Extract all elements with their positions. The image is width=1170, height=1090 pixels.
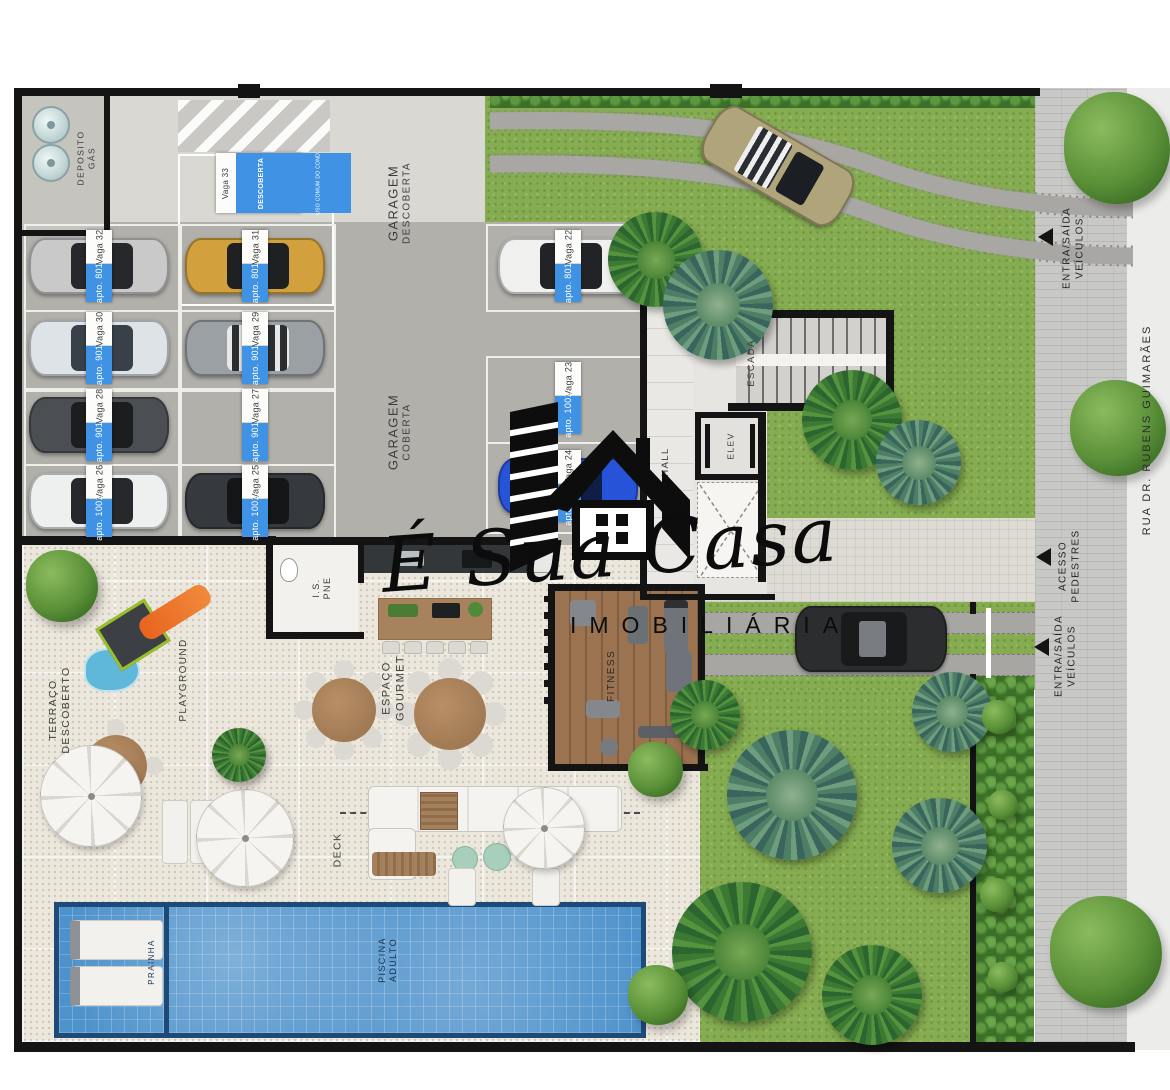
label-line: GARAGEM xyxy=(386,165,402,241)
gym-station xyxy=(570,600,596,626)
deck-wood-lounger xyxy=(372,852,436,876)
garden-palm xyxy=(892,798,987,893)
kitchen-fridge xyxy=(528,547,554,573)
elevator-label: ELEV xyxy=(726,432,737,459)
planting-bush xyxy=(988,790,1018,820)
street-tree xyxy=(1050,896,1162,1008)
apto-number: apto. 1001 xyxy=(555,396,581,434)
playground-label: PLAYGROUND xyxy=(178,638,191,721)
vaga-number: Vaga 33 xyxy=(216,153,236,213)
void-x-marks xyxy=(698,483,764,579)
gas-cylinder xyxy=(32,106,70,144)
dining-chair xyxy=(404,641,422,654)
label-line: PNE xyxy=(322,577,333,600)
label-line: COBERTA xyxy=(402,403,415,460)
vaga-text: Vaga 29 xyxy=(250,311,260,346)
vaga-text: Vaga 23 xyxy=(563,361,573,396)
dining-chair xyxy=(470,641,488,654)
vaga-number: Vaga 26 xyxy=(86,465,112,499)
gas-room-label: DEPOSITO GÁS xyxy=(75,131,96,186)
wall-left xyxy=(14,88,22,1052)
terrace-tree xyxy=(26,550,98,622)
gourmet-round-table xyxy=(414,678,486,750)
apto-number: apto. 901 xyxy=(86,423,112,461)
apto-number: apto. 801 xyxy=(555,264,581,302)
parking-tag-vaga-23: Vaga 23apto. 1001 xyxy=(555,362,581,434)
table-greens xyxy=(388,604,418,617)
apto-text: apto. 1001 xyxy=(250,495,260,541)
kitchen-counter xyxy=(362,545,554,573)
apto-number: apto. 801 xyxy=(86,264,112,302)
parking-tag-vaga-22: Vaga 22apto. 801 xyxy=(555,230,581,302)
apto-number: apto. 901 xyxy=(242,423,268,461)
terrace-palm xyxy=(212,728,266,782)
label-line: PEDESTRES xyxy=(1070,529,1083,602)
label-line: ADULTO xyxy=(388,938,399,982)
label-line: PISCINA xyxy=(377,937,388,983)
palm-tree xyxy=(876,420,961,505)
terrace-label: TERRAÇO DESCOBERTO xyxy=(47,666,73,753)
parking-tag-vaga-25: Vaga 25apto. 1001 xyxy=(242,465,268,537)
parking-tag-vaga-33: Vaga 33 DESCOBERTA USO COMUM DO COND. xyxy=(216,153,302,213)
wall-top xyxy=(14,88,1040,96)
parking-tag-vaga-30: Vaga 30apto. 901 xyxy=(86,312,112,384)
label-line: ESPAÇO xyxy=(380,661,394,714)
elevator-rail xyxy=(750,424,755,468)
label-line: ELEV xyxy=(726,432,737,459)
wc-wall-top xyxy=(266,537,366,545)
pedestrian-access-label: ACESSO PEDESTRES xyxy=(1058,529,1083,602)
vaga-number: Vaga 23 xyxy=(555,362,581,396)
terrace-umbrella xyxy=(40,745,142,847)
apto-text: apto. 1001 xyxy=(94,495,104,541)
pool-chair xyxy=(532,868,560,906)
deck-label: DECK xyxy=(331,833,344,868)
pool-adult-label: PISCINA ADULTO xyxy=(377,937,400,983)
gas-room-wall-right xyxy=(104,96,110,236)
garden-palm xyxy=(670,680,740,750)
wall-garage-leisure xyxy=(14,536,276,545)
spot-33-note: DESCOBERTA USO COMUM DO COND. xyxy=(236,153,351,213)
garden-palm xyxy=(822,945,922,1045)
pool-kids-label: PRAINHA xyxy=(147,939,157,984)
table-plant xyxy=(468,602,483,617)
label-line: I.S. xyxy=(311,578,322,597)
label-line: ESCADA xyxy=(746,339,758,386)
garage-covered-label: GARAGEM COBERTA xyxy=(386,394,415,470)
vehicle-entrance-top-label: ENTRA/SAÍDA VEÍCULOS xyxy=(1062,207,1087,289)
dining-chair xyxy=(448,641,466,654)
garden-palm xyxy=(672,882,812,1022)
core-wall-right xyxy=(758,412,766,582)
vaga-text: Vaga 33 xyxy=(222,167,231,198)
parking-tag-vaga-28: Vaga 28apto. 901 xyxy=(86,389,112,461)
sun-lounger xyxy=(162,800,188,864)
apto-text: apto. 801 xyxy=(94,263,104,303)
label-line: GÁS xyxy=(86,147,97,169)
hatched-area xyxy=(178,100,330,152)
parking-tag-vaga-27: Vaga 27apto. 901 xyxy=(242,389,268,461)
apto-number: apto. 901 xyxy=(86,346,112,384)
vaga-number: Vaga 30 xyxy=(86,312,112,346)
pool-chair xyxy=(448,868,476,906)
label-line: VEÍCULOS xyxy=(1066,625,1079,687)
vaga-number: Vaga 31 xyxy=(242,230,268,264)
garden-bush xyxy=(628,742,683,797)
core-wall-bottom xyxy=(640,594,775,600)
label-line: DESCOBERTO xyxy=(60,666,73,753)
hall-wall-left xyxy=(640,298,647,600)
label-line: TERRAÇO xyxy=(47,679,60,740)
apto-text: apto. 901 xyxy=(250,345,260,385)
label-line: FITNESS xyxy=(606,650,619,702)
label-line: GOURMET xyxy=(394,655,408,721)
parking-tag-vaga-31: Vaga 31apto. 801 xyxy=(242,230,268,302)
apto-number: apto. 1001 xyxy=(242,499,268,537)
apto-text: apto. 1001 xyxy=(563,480,573,526)
label-line: VEÍCULOS xyxy=(1074,217,1087,279)
vaga-text: Vaga 22 xyxy=(563,229,573,264)
toilet xyxy=(280,558,298,582)
label-line: ENTRA/SAÍDA xyxy=(1054,615,1067,697)
apto-text: apto. 901 xyxy=(250,422,260,462)
wall-door-marker-1 xyxy=(238,84,260,98)
stairs-label: ESCADA xyxy=(746,339,758,386)
fitness-wall-top xyxy=(548,584,704,591)
deck-umbrella xyxy=(503,787,585,869)
label-line: DESCOBERTA xyxy=(402,162,415,244)
shaft-void xyxy=(697,482,763,578)
label-line: ENTRA/SAÍDA xyxy=(1062,207,1075,289)
label-line: RUA DR. RUBENS GUIMARÃES xyxy=(1141,325,1155,536)
vehicle-entrance-top-arrow xyxy=(1038,228,1053,246)
hall-label: HALL xyxy=(660,447,672,476)
apto-text: apto. 901 xyxy=(94,345,104,385)
planting-bush xyxy=(988,962,1018,992)
apto-text: apto. 1001 xyxy=(563,392,573,438)
label-line: PLAYGROUND xyxy=(178,638,191,721)
car-black-driving xyxy=(795,606,947,672)
wall-door-marker-2 xyxy=(710,84,742,98)
garden-palm xyxy=(727,730,857,860)
gas-cylinder xyxy=(32,144,70,182)
vaga-text: Vaga 32 xyxy=(94,229,104,264)
vaga-number: Vaga 28 xyxy=(86,389,112,423)
vehicle-entrance-bottom-label: ENTRA/SAÍDA VEÍCULOS xyxy=(1054,615,1079,697)
apto-number: apto. 801 xyxy=(242,264,268,302)
vaga-number: Vaga 29 xyxy=(242,312,268,346)
wall-property-right-upper xyxy=(970,602,976,614)
kitchen-wall-top xyxy=(358,537,556,545)
gym-bike xyxy=(628,606,648,644)
dining-chair xyxy=(426,641,444,654)
pergola-dotted-line xyxy=(544,596,551,704)
vaga-text: Vaga 25 xyxy=(250,464,260,499)
street-tree xyxy=(1064,92,1170,204)
vaga-text: Vaga 30 xyxy=(94,311,104,346)
table-grill xyxy=(432,603,460,618)
car-sunroof xyxy=(859,621,886,658)
vaga-number: Vaga 22 xyxy=(555,230,581,264)
vaga-number: Vaga 32 xyxy=(86,230,112,264)
apto-text: apto. 801 xyxy=(563,263,573,303)
dining-chair xyxy=(382,641,400,654)
gym-bench xyxy=(586,700,620,718)
apto-number: apto. 901 xyxy=(242,346,268,384)
pool-divider xyxy=(164,904,169,1036)
garage-uncovered-label: GARAGEM DESCOBERTA xyxy=(386,162,415,244)
wall-bottom xyxy=(14,1042,1135,1052)
vaga-number: Vaga 27 xyxy=(242,389,268,423)
wc-label: I.S. PNE xyxy=(311,577,334,600)
label-line: ACESSO xyxy=(1058,541,1071,591)
vaga-text: Vaga 27 xyxy=(250,388,260,423)
kitchen-cooktop xyxy=(462,550,492,568)
gym-treadmill xyxy=(664,600,688,654)
vaga-number: Vaga 25 xyxy=(242,465,268,499)
note-small: USO COMUM DO COND. xyxy=(316,151,322,214)
terrace-umbrella-2 xyxy=(196,789,294,887)
apto-number: apto. 1001 xyxy=(86,499,112,537)
vaga-text: Vaga 24 xyxy=(563,449,573,484)
apto-text: apto. 901 xyxy=(94,422,104,462)
wc-wall-bottom xyxy=(266,632,364,639)
parking-tag-vaga-24: Vaga 24apto. 1001 xyxy=(555,450,581,522)
planting-bush xyxy=(980,878,1014,912)
vaga-text: Vaga 26 xyxy=(94,464,104,499)
deck-slat-table xyxy=(420,792,458,830)
planting-bush xyxy=(982,700,1016,734)
label-line: DECK xyxy=(331,833,344,868)
street-name-label: RUA DR. RUBENS GUIMARÃES xyxy=(1141,325,1155,536)
label-line: DEPOSITO xyxy=(75,131,86,186)
stairs-landing xyxy=(736,354,886,366)
wc-wall-left xyxy=(266,537,273,639)
label-line: HALL xyxy=(660,447,672,476)
garden-palm xyxy=(912,672,992,752)
vaga-text: Vaga 28 xyxy=(94,388,104,423)
gym-ball xyxy=(600,738,618,756)
vaga-text: Vaga 31 xyxy=(250,229,260,264)
vehicle-entrance-bottom-arrow xyxy=(1034,638,1049,656)
note-big: DESCOBERTA xyxy=(258,157,265,208)
fitness-label: FITNESS xyxy=(606,650,619,702)
label-line: GARAGEM xyxy=(386,394,402,470)
parking-tag-vaga-32: Vaga 32apto. 801 xyxy=(86,230,112,302)
parking-tag-vaga-29: Vaga 29apto. 901 xyxy=(242,312,268,384)
site-plan: DEPOSITO GÁS GARAGEM DESCOBERTA GARAGEM … xyxy=(0,0,1170,1090)
gourmet-round-table xyxy=(312,678,376,742)
elevator-rail xyxy=(705,424,710,468)
label-line: PRAINHA xyxy=(147,939,157,984)
vaga-number: Vaga 24 xyxy=(555,450,581,484)
gourmet-label: ESPAÇO GOURMET xyxy=(380,655,408,721)
parking-tag-vaga-26: Vaga 26apto. 1001 xyxy=(86,465,112,537)
pedestrian-access-arrow xyxy=(1036,548,1051,566)
apto-number: apto. 1001 xyxy=(555,484,581,522)
kitchen-sink xyxy=(398,551,424,566)
gate-line xyxy=(986,608,991,678)
apto-text: apto. 801 xyxy=(250,263,260,303)
garden-bush xyxy=(628,965,688,1025)
